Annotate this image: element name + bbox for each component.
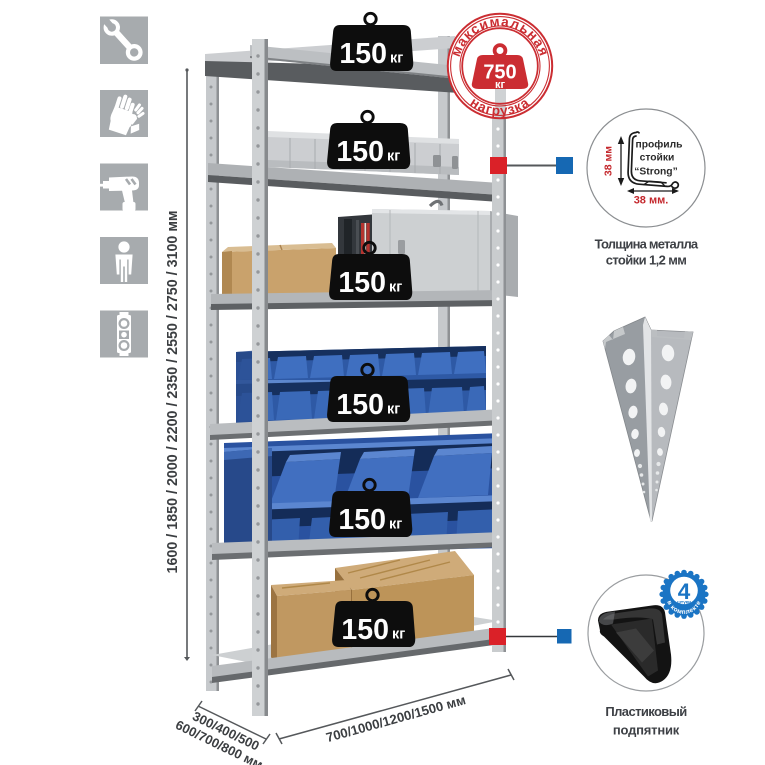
svg-text:38 мм.: 38 мм. (634, 195, 669, 207)
svg-text:штуки: штуки (677, 600, 691, 605)
svg-text:кг: кг (495, 79, 506, 91)
svg-text:38 мм: 38 мм (603, 146, 615, 176)
svg-text:подпятник: подпятник (613, 723, 680, 738)
svg-text:стойки 1,2 мм: стойки 1,2 мм (606, 253, 687, 268)
svg-text:Пластиковый: Пластиковый (605, 704, 687, 719)
svg-text:стойки: стойки (640, 153, 675, 164)
svg-text:1600 / 1850 / 2000 / 2200 / 23: 1600 / 1850 / 2000 / 2200 / 2350 / 2550 … (165, 211, 181, 574)
svg-text:“Strong”: “Strong” (634, 167, 677, 178)
svg-text:Толщина металла: Толщина металла (595, 237, 699, 252)
svg-text:профиль: профиль (635, 139, 682, 151)
